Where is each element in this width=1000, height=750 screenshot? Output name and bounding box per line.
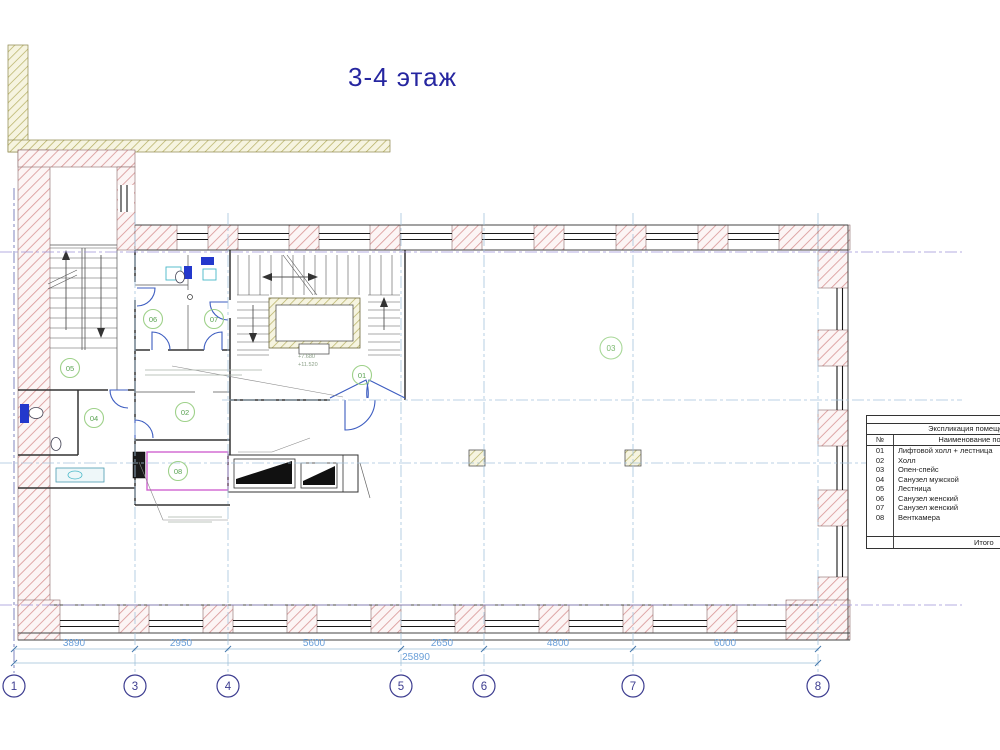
- table-footer-label: Итого: [974, 538, 994, 547]
- svg-text:06: 06: [149, 315, 157, 324]
- table-row: 02Холл: [867, 456, 1000, 466]
- dim-seg-5: 4800: [547, 638, 570, 649]
- room-bubble-06: 06: [144, 310, 163, 329]
- wall-edges: [18, 225, 850, 640]
- toilet-bowl-icon: [176, 271, 185, 283]
- svg-text:01: 01: [358, 371, 366, 380]
- existing-walls: [8, 45, 390, 152]
- dim-total: 25890: [402, 652, 430, 663]
- table-top-strip: [867, 416, 1000, 424]
- toilet-tank-icon: [201, 257, 214, 265]
- table-column-headers: № Наименование помещения: [867, 435, 1000, 446]
- table-body: 01Лифтовой холл + лестница 02Холл 03Опен…: [867, 446, 1000, 536]
- floor-drain-icon: [188, 295, 193, 300]
- page-title: 3-4 этаж: [348, 62, 457, 93]
- grid-lines: [0, 188, 962, 673]
- outer-walls: [18, 150, 850, 640]
- table-row: 01Лифтовой холл + лестница: [867, 446, 1000, 456]
- dim-seg-1: 3890: [63, 638, 86, 649]
- column-divider: [893, 537, 894, 548]
- axis-bubbles: 1 3 4 5 6 7 8: [3, 675, 829, 697]
- door-swing-icon: [204, 332, 222, 350]
- axis-bubble-5: 5: [390, 675, 412, 697]
- annotation-text-lines: [145, 370, 262, 522]
- svg-text:5: 5: [398, 681, 404, 693]
- axis-bubble-1: 1: [3, 675, 25, 697]
- urinal-icon: [51, 438, 61, 451]
- room-bubble-08: 08: [169, 462, 188, 481]
- dimension-lines: 3890 2950 5600 2650 4800 6000 25890: [11, 638, 821, 666]
- table-row: 06Санузел женский: [867, 494, 1000, 504]
- sink-icon: [203, 269, 216, 280]
- svg-text:4: 4: [225, 681, 232, 693]
- level-mark-upper: +7.680: [298, 354, 315, 360]
- table-row: 03Опен-спейс: [867, 465, 1000, 475]
- double-door-leaf-icon: [367, 380, 405, 398]
- svg-text:02: 02: [181, 408, 189, 417]
- door-swing-icon: [345, 400, 375, 430]
- svg-text:04: 04: [90, 414, 98, 423]
- table-row: 07Санузел женский: [867, 503, 1000, 513]
- col-header-name: Наименование помещения: [894, 435, 1000, 445]
- axis-bubble-3: 3: [124, 675, 146, 697]
- svg-text:07: 07: [210, 315, 218, 324]
- table-title: Экспликация помещений: [867, 424, 1000, 435]
- svg-text:08: 08: [174, 467, 182, 476]
- axis-bubble-8: 8: [807, 675, 829, 697]
- axis-bubble-6: 6: [473, 675, 495, 697]
- table-row: 08Венткамера: [867, 513, 1000, 523]
- counter-icon: [56, 468, 104, 482]
- toilet-tank-icon: [20, 404, 29, 423]
- room-bubble-04: 04: [85, 409, 104, 428]
- svg-text:3: 3: [132, 681, 138, 693]
- svg-text:1: 1: [11, 681, 17, 693]
- axis-bubble-4: 4: [217, 675, 239, 697]
- column-divider: [893, 446, 894, 536]
- columns: [469, 450, 641, 466]
- table-footer: Итого: [867, 536, 1000, 548]
- door-swing-icon: [152, 332, 170, 350]
- duct-ramp: [228, 455, 370, 498]
- double-door-leaf-icon: [330, 380, 368, 398]
- dim-seg-3: 5600: [303, 638, 326, 649]
- svg-text:8: 8: [815, 681, 821, 693]
- table-row: 04Санузел мужской: [867, 475, 1000, 485]
- dim-seg-4: 2650: [431, 638, 454, 649]
- axis-bubble-7: 7: [622, 675, 644, 697]
- svg-text:03: 03: [607, 344, 616, 353]
- door-swing-icon: [110, 390, 128, 408]
- room-bubble-05: 05: [61, 359, 80, 378]
- dim-seg-6: 6000: [714, 638, 737, 649]
- dim-seg-2: 2950: [170, 638, 193, 649]
- svg-text:7: 7: [630, 681, 636, 693]
- leader-lines: [139, 366, 343, 520]
- toilet-tank-icon: [184, 266, 192, 279]
- toilet-bowl-icon: [29, 408, 43, 419]
- svg-text:6: 6: [481, 681, 487, 693]
- door-swing-icon: [137, 288, 155, 306]
- room-bubble-02: 02: [176, 403, 195, 422]
- level-mark-lower: +11.520: [298, 362, 318, 368]
- svg-text:05: 05: [66, 364, 74, 373]
- room-bubble-03: 03: [600, 337, 622, 359]
- doors: [110, 288, 405, 438]
- elevator-shaft: [269, 298, 360, 354]
- door-swing-icon: [135, 420, 153, 438]
- floor-plan-canvas: +7.680 +11.520: [0, 0, 1000, 750]
- stairs-05: [48, 248, 117, 350]
- drawing-sheet: 3-4 этаж: [0, 0, 1000, 750]
- col-header-no: №: [867, 435, 894, 445]
- table-row: 05Лестница: [867, 484, 1000, 494]
- room-explication-table: Экспликация помещений № Наименование пом…: [866, 415, 1000, 549]
